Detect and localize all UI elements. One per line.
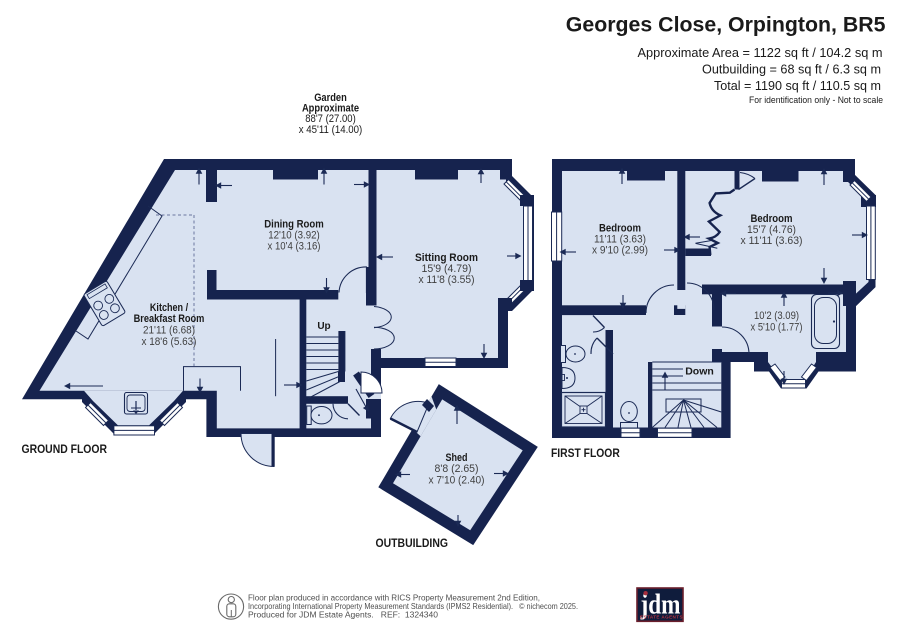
svg-text:Produced for JDM Estate Agents: Produced for JDM Estate Agents. REF: 132… xyxy=(248,609,438,619)
svg-text:FIRST FLOOR: FIRST FLOOR xyxy=(551,448,620,460)
svg-text:x 11'11 (3.63): x 11'11 (3.63) xyxy=(741,235,803,247)
svg-text:11'11 (3.63): 11'11 (3.63) xyxy=(594,234,646,246)
svg-text:Shed: Shed xyxy=(446,452,468,464)
svg-text:GROUND FLOOR: GROUND FLOOR xyxy=(22,444,108,456)
svg-text:Bedroom: Bedroom xyxy=(751,213,793,225)
svg-text:15'9 (4.79): 15'9 (4.79) xyxy=(422,263,472,275)
svg-text:x 9'10 (2.99): x 9'10 (2.99) xyxy=(592,245,648,257)
svg-text:x 18'6 (5.63): x 18'6 (5.63) xyxy=(142,336,197,348)
svg-text:Georges Close, Orpington, BR5: Georges Close, Orpington, BR5 xyxy=(566,14,886,37)
svg-text:21'11 (6.68): 21'11 (6.68) xyxy=(143,325,195,337)
svg-text:Approximate Area = 1122 sq ft: Approximate Area = 1122 sq ft / 104.2 sq… xyxy=(638,45,883,60)
svg-text:OUTBUILDING: OUTBUILDING xyxy=(376,538,449,550)
svg-text:Down: Down xyxy=(685,366,714,378)
svg-text:Sitting Room: Sitting Room xyxy=(415,252,478,264)
svg-text:Kitchen /: Kitchen / xyxy=(150,302,188,314)
svg-text:8'8 (2.65): 8'8 (2.65) xyxy=(435,463,479,475)
svg-text:x 11'8 (3.55): x 11'8 (3.55) xyxy=(419,274,475,286)
svg-text:Outbuilding = 68 sq ft / 6.3 s: Outbuilding = 68 sq ft / 6.3 sq m xyxy=(702,62,881,77)
svg-text:x 5'10 (1.77): x 5'10 (1.77) xyxy=(751,322,803,334)
svg-text:ESTATE AGENTS: ESTATE AGENTS xyxy=(640,614,683,619)
svg-text:x 45'11 (14.00): x 45'11 (14.00) xyxy=(299,124,363,136)
svg-text:Dining Room: Dining Room xyxy=(264,218,324,230)
svg-text:Total = 1190 sq ft / 110.5 sq: Total = 1190 sq ft / 110.5 sq m xyxy=(714,78,881,93)
svg-text:x 10'4 (3.16): x 10'4 (3.16) xyxy=(268,241,321,253)
svg-text:x 7'10 (2.40): x 7'10 (2.40) xyxy=(429,475,485,487)
svg-text:For identification only - Not: For identification only - Not to scale xyxy=(749,95,883,105)
svg-text:10'2 (3.09): 10'2 (3.09) xyxy=(754,310,799,322)
svg-text:Breakfast Room: Breakfast Room xyxy=(134,313,205,325)
svg-text:Bedroom: Bedroom xyxy=(599,222,641,234)
svg-text:Up: Up xyxy=(317,321,330,332)
svg-text:15'7 (4.76): 15'7 (4.76) xyxy=(747,224,796,236)
svg-text:12'10 (3.92): 12'10 (3.92) xyxy=(268,230,320,242)
